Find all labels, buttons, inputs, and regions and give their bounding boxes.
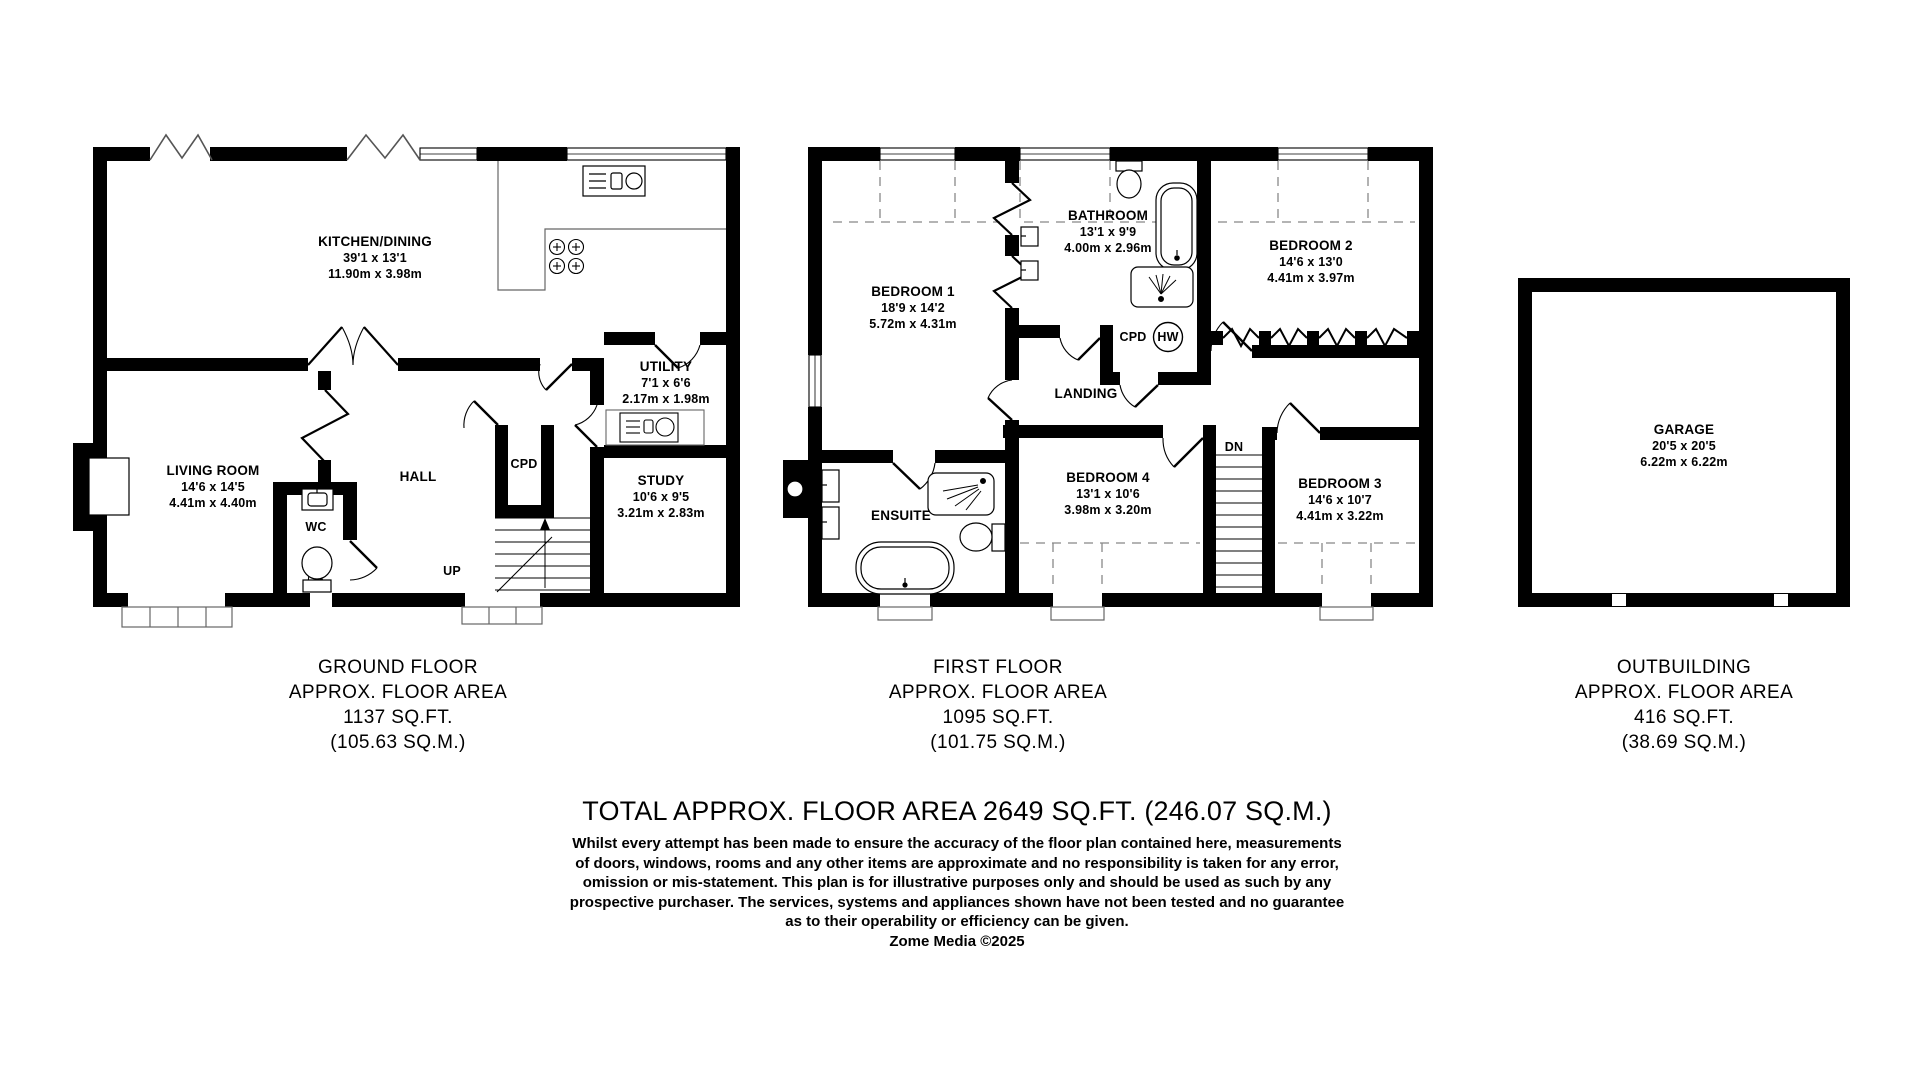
- outbuilding-area-label: OUTBUILDING APPROX. FLOOR AREA 416 SQ.FT…: [1575, 655, 1793, 755]
- floor-name: FIRST FLOOR: [889, 655, 1107, 680]
- room-label-bedroom-4: BEDROOM 4 13'1 x 10'6 3.98m x 3.20m: [1064, 470, 1151, 518]
- sink-icon: [1021, 227, 1038, 280]
- bathtub-icon: [1156, 183, 1197, 270]
- room-name: STUDY: [617, 473, 704, 489]
- window-icon: [878, 607, 1373, 620]
- sink-icon: [302, 489, 333, 510]
- folding-door-icon: [302, 390, 348, 462]
- room-name: DN: [1225, 439, 1243, 455]
- room-name: BEDROOM 1: [869, 284, 956, 300]
- disclaimer-text: Whilst every attempt has been made to en…: [570, 834, 1344, 951]
- room-size-imperial: 10'6 x 9'5: [617, 489, 704, 505]
- utility-sink-icon: [606, 410, 704, 445]
- room-label-kitchen-dining: KITCHEN/DINING 39'1 x 13'1 11.90m x 3.98…: [318, 234, 432, 282]
- toilet-icon: [960, 523, 1005, 551]
- sink-icon: [822, 470, 839, 539]
- room-size-metric: 4.41m x 3.22m: [1296, 508, 1383, 524]
- room-size-metric: 2.17m x 1.98m: [622, 391, 709, 407]
- room-name: CPD: [1120, 329, 1147, 345]
- shower-icon: [1131, 267, 1193, 307]
- room-name: BATHROOM: [1064, 208, 1151, 224]
- room-name: LIVING ROOM: [167, 463, 260, 479]
- room-label-wc: WC: [305, 519, 326, 535]
- room-name: CPD: [511, 456, 538, 472]
- floor-area-sqm: (101.75 SQ.M.): [889, 730, 1107, 755]
- room-label-utility: UTILITY 7'1 x 6'6 2.17m x 1.98m: [622, 359, 709, 407]
- stairs-up: [495, 518, 590, 592]
- room-size-metric: 11.90m x 3.98m: [318, 266, 432, 282]
- floor-area-sqft: 1137 SQ.FT.: [289, 705, 507, 730]
- room-label-cpd-first: CPD: [1120, 329, 1147, 345]
- disclaimer-line: prospective purchaser. The services, sys…: [570, 893, 1344, 913]
- floor-area-caption: APPROX. FLOOR AREA: [889, 680, 1107, 705]
- floor-area-sqm: (105.63 SQ.M.): [289, 730, 507, 755]
- fireplace-icon: [89, 458, 129, 515]
- room-name: BEDROOM 4: [1064, 470, 1151, 486]
- disclaimer-line: of doors, windows, rooms and any other i…: [570, 854, 1344, 874]
- door-icon: [1120, 385, 1158, 407]
- toilet-icon: [302, 547, 332, 592]
- room-size-metric: 4.41m x 3.97m: [1267, 270, 1354, 286]
- room-label-ensuite: ENSUITE: [871, 508, 931, 524]
- floorplan-page: KITCHEN/DINING 39'1 x 13'1 11.90m x 3.98…: [0, 0, 1920, 1067]
- total-floor-area: TOTAL APPROX. FLOOR AREA 2649 SQ.FT. (24…: [582, 796, 1331, 827]
- disclaimer-line: omission or mis-statement. This plan is …: [570, 873, 1344, 893]
- room-name: WC: [305, 519, 326, 535]
- hob-icon: [550, 240, 584, 274]
- room-size-imperial: 13'1 x 10'6: [1064, 486, 1151, 502]
- toilet-icon: [1116, 161, 1142, 198]
- room-size-imperial: 14'6 x 13'0: [1267, 254, 1354, 270]
- room-size-imperial: 18'9 x 14'2: [869, 300, 956, 316]
- floor-area-caption: APPROX. FLOOR AREA: [1575, 680, 1793, 705]
- shower-icon: [928, 473, 994, 515]
- disclaimer-line: as to their operability or efficiency ca…: [570, 912, 1344, 932]
- room-label-bedroom-2: BEDROOM 2 14'6 x 13'0 4.41m x 3.97m: [1267, 238, 1354, 286]
- door-icon: [539, 364, 572, 390]
- floor-name: GROUND FLOOR: [289, 655, 507, 680]
- room-size-metric: 6.22m x 6.22m: [1640, 454, 1727, 470]
- room-size-metric: 4.00m x 2.96m: [1064, 240, 1151, 256]
- room-label-bedroom-1: BEDROOM 1 18'9 x 14'2 5.72m x 4.31m: [869, 284, 956, 332]
- room-size-metric: 3.98m x 3.20m: [1064, 502, 1151, 518]
- room-size-imperial: 20'5 x 20'5: [1640, 438, 1727, 454]
- door-icon: [575, 405, 597, 447]
- credit-line: Zome Media ©2025: [570, 932, 1344, 952]
- room-name: ENSUITE: [871, 508, 931, 524]
- room-name: LANDING: [1055, 386, 1118, 402]
- floor-area-caption: APPROX. FLOOR AREA: [289, 680, 507, 705]
- bay-window-icon: [122, 607, 542, 627]
- floor-name: OUTBUILDING: [1575, 655, 1793, 680]
- room-name: BEDROOM 3: [1296, 476, 1383, 492]
- room-size-imperial: 14'6 x 10'7: [1296, 492, 1383, 508]
- room-size-imperial: 13'1 x 9'9: [1064, 224, 1151, 240]
- room-size-metric: 5.72m x 4.31m: [869, 316, 956, 332]
- door-icon: [1277, 403, 1320, 433]
- bathtub-icon: [856, 542, 954, 594]
- door-icon: [464, 401, 498, 428]
- room-label-study: STUDY 10'6 x 9'5 3.21m x 2.83m: [617, 473, 704, 521]
- room-name: KITCHEN/DINING: [318, 234, 432, 250]
- room-label-hall: HALL: [400, 469, 437, 485]
- room-label-cpd-ground: CPD: [511, 456, 538, 472]
- first-floor-area-label: FIRST FLOOR APPROX. FLOOR AREA 1095 SQ.F…: [889, 655, 1107, 755]
- door-icon: [988, 380, 1012, 420]
- ground-floor-area-label: GROUND FLOOR APPROX. FLOOR AREA 1137 SQ.…: [289, 655, 507, 755]
- room-label-landing: LANDING: [1055, 386, 1118, 402]
- room-size-imperial: 39'1 x 13'1: [318, 250, 432, 266]
- garage-door-mark: [1774, 594, 1788, 606]
- room-size-imperial: 14'6 x 14'5: [167, 479, 260, 495]
- room-size-metric: 3.21m x 2.83m: [617, 505, 704, 521]
- window-icon: [809, 355, 821, 407]
- room-label-living-room: LIVING ROOM 14'6 x 14'5 4.41m x 4.40m: [167, 463, 260, 511]
- door-icon: [1163, 438, 1203, 467]
- floor-area-sqft: 1095 SQ.FT.: [889, 705, 1107, 730]
- double-door-icon: [308, 327, 398, 365]
- flue-icon: [787, 481, 803, 497]
- room-size-imperial: 7'1 x 6'6: [622, 375, 709, 391]
- room-name: BEDROOM 2: [1267, 238, 1354, 254]
- floor-area-sqft: 416 SQ.FT.: [1575, 705, 1793, 730]
- room-name: HW: [1157, 329, 1178, 345]
- room-label-bedroom-3: BEDROOM 3 14'6 x 10'7 4.41m x 3.22m: [1296, 476, 1383, 524]
- disclaimer-line: Whilst every attempt has been made to en…: [570, 834, 1344, 854]
- hot-water-label: HW: [1157, 329, 1178, 345]
- room-size-metric: 4.41m x 4.40m: [167, 495, 260, 511]
- room-name: HALL: [400, 469, 437, 485]
- window-icon: [420, 148, 726, 160]
- stairs-up-label: UP: [443, 563, 461, 579]
- room-name: GARAGE: [1640, 422, 1727, 438]
- room-name: UTILITY: [622, 359, 709, 375]
- room-label-garage: GARAGE 20'5 x 20'5 6.22m x 6.22m: [1640, 422, 1727, 470]
- garage-door-mark: [1612, 594, 1626, 606]
- stairs-down: [1216, 455, 1262, 587]
- floor-area-sqm: (38.69 SQ.M.): [1575, 730, 1793, 755]
- door-icon: [350, 541, 377, 580]
- door-icon: [1060, 338, 1100, 360]
- kitchen-sink-icon: [583, 166, 645, 196]
- room-name: UP: [443, 563, 461, 579]
- room-label-bathroom: BATHROOM 13'1 x 9'9 4.00m x 2.96m: [1064, 208, 1151, 256]
- stairs-down-label: DN: [1225, 439, 1243, 455]
